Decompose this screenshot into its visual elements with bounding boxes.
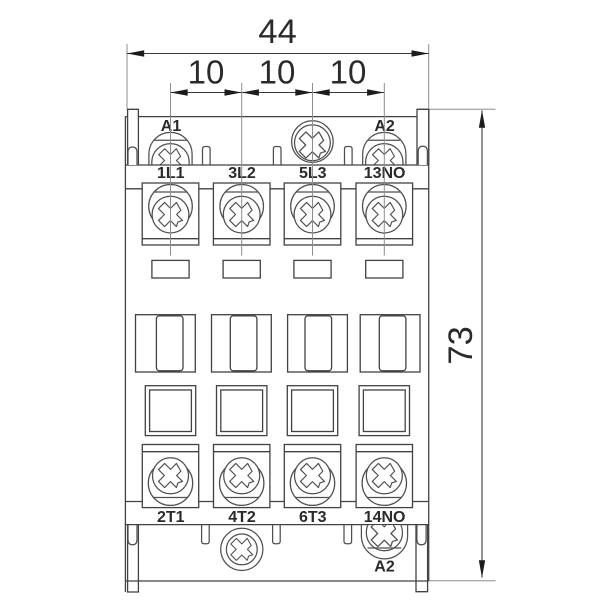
svg-text:6T3: 6T3: [299, 509, 327, 526]
svg-text:10: 10: [259, 54, 296, 91]
svg-text:14NO: 14NO: [364, 509, 406, 526]
svg-text:A2: A2: [374, 559, 395, 576]
svg-text:10: 10: [330, 54, 367, 91]
svg-text:A1: A1: [161, 118, 182, 135]
svg-text:2T1: 2T1: [157, 509, 185, 526]
svg-text:4T2: 4T2: [228, 509, 256, 526]
svg-text:10: 10: [188, 54, 225, 91]
svg-text:73: 73: [442, 326, 480, 364]
svg-text:44: 44: [258, 13, 296, 51]
